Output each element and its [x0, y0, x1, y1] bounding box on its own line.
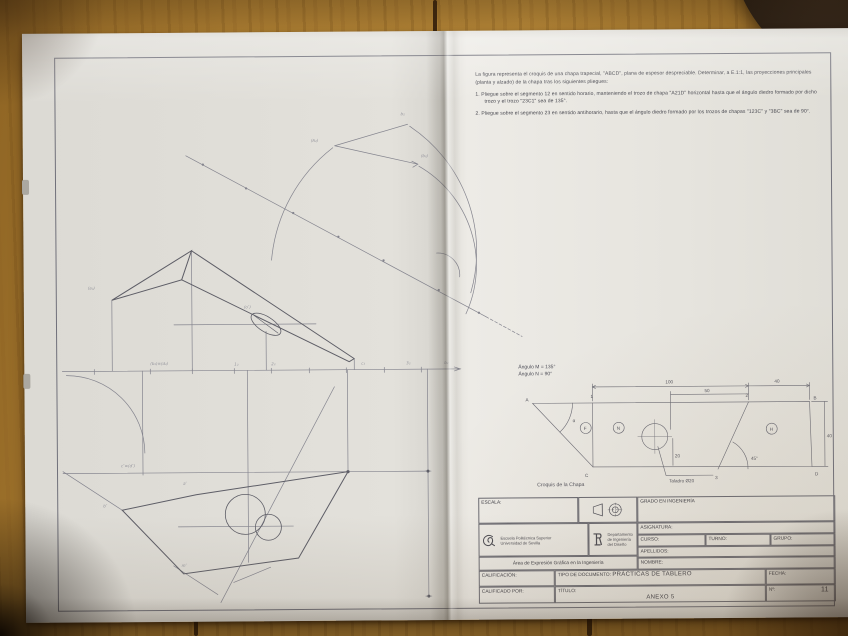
titleblock-grupo-cell: GRUPO: [770, 533, 835, 545]
croquis-dim-top: 100 [665, 379, 673, 384]
titleblock-calificacion-cell: CALIFICACIÓN: [479, 570, 555, 587]
grupo-label: GRUPO: [773, 537, 792, 542]
tipo-documento-label: TIPO DE DOCUMENTO: [558, 573, 611, 578]
eps-logo-icon [481, 532, 497, 548]
pencil-point-labels: (b₂)≡(d₂) 1₂ 2₂ c₂ 3₂ b₂ (A₂) (b₂) b₂ (a… [87, 111, 451, 569]
curso-label: CURSO: [640, 537, 659, 542]
croquis-vertex-3: 3 [715, 475, 718, 480]
croquis-angle-a: α [573, 418, 576, 423]
croquis-region-h: H [770, 427, 773, 432]
titleblock-numero-cell: Nº: 11 [766, 584, 836, 601]
gl-label: (b₂)≡(d₂) [150, 361, 168, 366]
croquis-caption: Croquis de la Chapa [537, 482, 584, 488]
gl-label: 3₂ [406, 360, 411, 365]
croquis-angle-notes: Ángulo M = 135° Ángulo N = 90° [518, 364, 555, 378]
croquis-dim-top-right: 40 [774, 379, 780, 384]
croquis-vertex-b: B [813, 395, 816, 400]
titleblock-tipo-cell: TIPO DE DOCUMENTO: PRÁCTICAS DE TABLERO [555, 569, 766, 586]
titleblock-titulo-cell: TÍTULO: ANEXO 5 [555, 585, 766, 603]
titleblock-projection-cell [578, 497, 637, 523]
calificado-por-label: CALIFICADO POR: [482, 589, 524, 594]
croquis-dim-right: 40 [827, 433, 833, 438]
titleblock-curso-cell: CURSO: [637, 534, 705, 546]
angle-note-2: Ángulo N = 90° [518, 371, 555, 378]
titleblock-eps-logo-cell: Escuela Politécnica Superior Universidad… [478, 523, 588, 557]
point-label: c″≡(d″) [121, 463, 136, 468]
titleblock-dept-logo-cell: Departamento de Ingeniería del Diseño [588, 523, 637, 556]
titleblock-area-cell: Área de Expresión Gráfica en la Ingenier… [479, 556, 638, 571]
croquis-vertex-a: A [526, 397, 530, 402]
croquis-dim-mid: 50 [704, 388, 710, 393]
pencil-construction-lines [61, 123, 524, 603]
point-label: b″ [103, 503, 108, 508]
croquis-region-f: F [584, 426, 587, 431]
croquis-vertex-c: C [585, 473, 589, 478]
croquis-region-n: N [617, 426, 620, 431]
point-label: (A₂) [311, 138, 319, 143]
titulo-value: ANEXO 5 [558, 594, 763, 601]
tipo-documento-value: PRÁCTICAS DE TABLERO [612, 571, 692, 578]
croquis-outline [532, 382, 828, 476]
exercise-instructions: La figura representa el croquis de una c… [475, 69, 827, 118]
titleblock-escala-cell: ESCALA: [478, 497, 578, 524]
grado-label: GRADO EN INGENIERÍA [640, 499, 695, 504]
escala-label: ESCALA: [481, 501, 501, 506]
gl-label: b₂ [444, 360, 449, 365]
croquis-vertex-2: 2 [745, 393, 748, 398]
titleblock-grado-cell: GRADO EN INGENIERÍA [637, 495, 835, 522]
eps-name-line1: Escuela Politécnica Superior [500, 535, 551, 540]
photo-of-drawing-sheet: (b₂)≡(d₂) 1₂ 2₂ c₂ 3₂ b₂ (A₂) (b₂) b₂ (a… [0, 0, 848, 636]
croquis-dim-hole: 20 [675, 453, 681, 458]
apellidos-label: APELLIDOS: [641, 549, 669, 554]
numero-value: 11 [821, 586, 829, 593]
numero-label: Nº: [769, 588, 776, 593]
titulo-label: TÍTULO: [558, 589, 576, 594]
gl-label: 2₂ [271, 361, 276, 366]
drawing-sheet-paper: (b₂)≡(d₂) 1₂ 2₂ c₂ 3₂ b₂ (A₂) (b₂) b₂ (a… [22, 28, 848, 623]
dept-name-line3: del Diseño [608, 542, 633, 547]
croquis-vertex-1: 1 [590, 394, 593, 399]
asignatura-label: ASIGNATURA: [640, 525, 672, 530]
title-block: ESCALA: GRADO EN INGENIERÍA [478, 495, 836, 603]
croquis-angle-3: 45° [751, 456, 758, 461]
point-label: (a₂) [88, 285, 96, 290]
eps-name-line2: Universidad de Sevilla [500, 540, 551, 545]
titleblock-turno-cell: TURNO: [705, 534, 770, 546]
point-label: (b₂) [421, 153, 429, 158]
calificacion-label: CALIFICACIÓN: [482, 573, 517, 578]
instruction-item-1: 1. Pliegue sobre el segmento 12 en senti… [475, 89, 827, 107]
point-label: (o″) [244, 304, 252, 309]
dept-logo-icon [591, 532, 604, 547]
croquis-vertex-d: D [815, 471, 819, 476]
area-label: Área de Expresión Gráfica en la Ingenier… [513, 560, 604, 566]
point-label: a″ [183, 481, 187, 486]
turno-label: TURNO: [708, 537, 726, 542]
instructions-intro: La figura representa el croquis de una c… [475, 69, 827, 87]
titleblock-fecha-cell: FECHA: [766, 568, 836, 584]
first-angle-projection-icon [591, 502, 625, 518]
point-label: b₂ [401, 111, 406, 116]
nombre-label: NOMBRE: [641, 560, 663, 565]
pencil-main-outlines [111, 249, 429, 599]
fecha-label: FECHA: [769, 572, 787, 577]
gl-label: 1₂ [234, 361, 239, 366]
croquis-hole-label: Taladro Ø20 [669, 478, 695, 483]
gl-label: c₂ [361, 361, 365, 366]
titleblock-calificado-cell: CALIFICADO POR: [479, 586, 555, 604]
point-label: m″ [182, 563, 188, 568]
